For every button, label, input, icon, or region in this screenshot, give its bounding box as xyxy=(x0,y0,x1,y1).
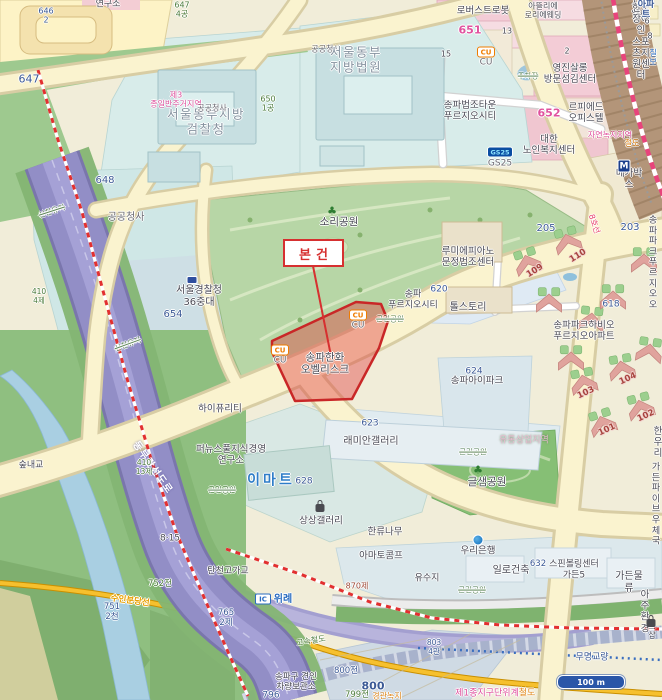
map-base-art xyxy=(0,0,662,700)
map-canvas[interactable]: 646 2 연구소 647 4공 647 제3 종일반주거지역 서울동부지방 검… xyxy=(0,0,662,700)
subject-marker[interactable]: 본건 xyxy=(283,239,344,267)
scale-bar: 100 m xyxy=(557,675,625,689)
